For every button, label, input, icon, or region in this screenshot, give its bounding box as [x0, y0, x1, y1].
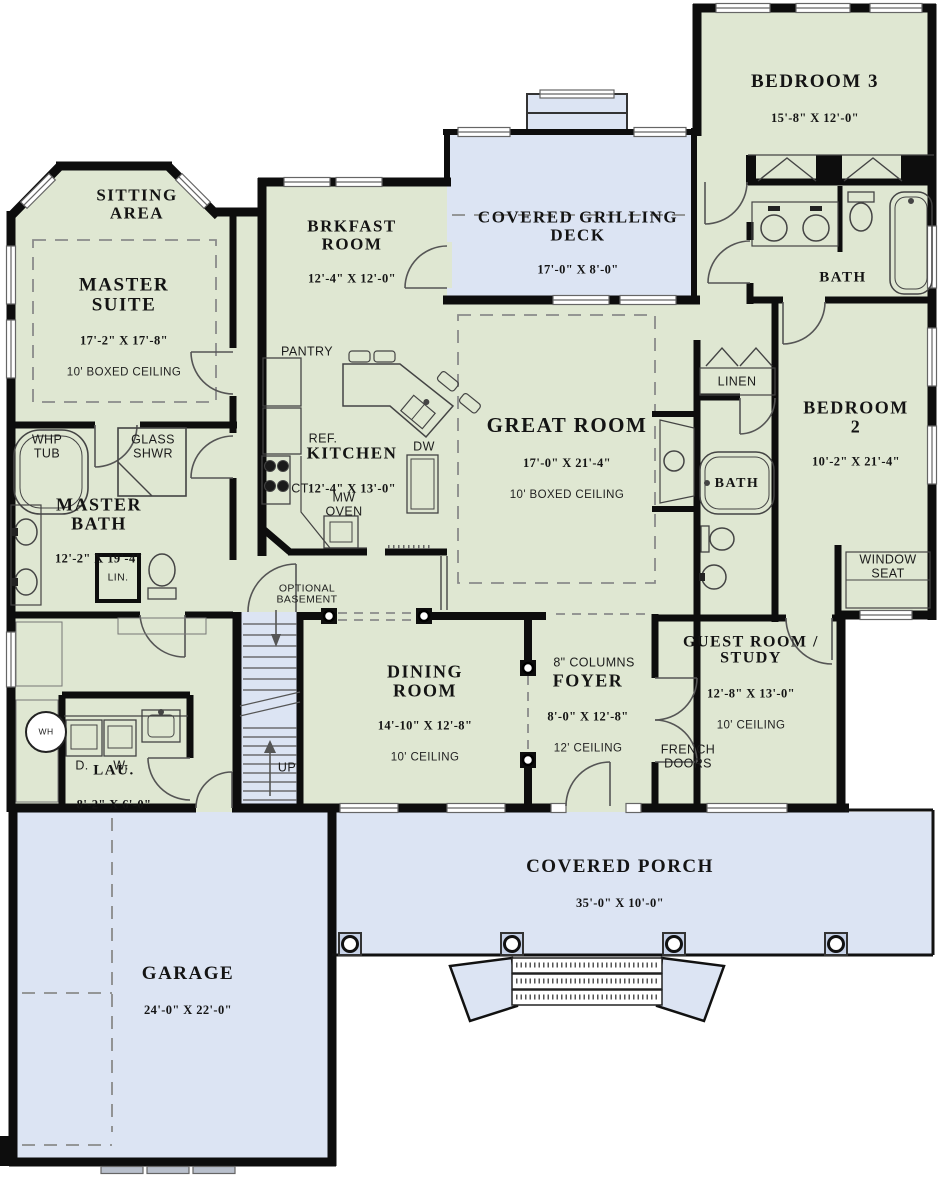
garage-label: GARAGE 24'-0" X 22'-0" — [142, 946, 234, 1036]
room-note: 10' BOXED CEILING — [67, 367, 181, 379]
whirlpool-tub-label: WHP TUB — [32, 434, 62, 461]
room-name: MASTER SUITE — [67, 275, 181, 314]
room-dims: 12'-2" X 19'-4" — [55, 552, 143, 567]
master-bath-label: MASTER BATH 12'-2" X 19'-4" — [55, 477, 143, 584]
room-name: BRKFAST ROOM — [307, 218, 397, 253]
foyer-label: FOYER 8'-0" X 12'-8" 12' CEILING — [547, 654, 628, 773]
room-note: 10' CEILING — [378, 752, 473, 764]
dishwasher-label: DW — [413, 440, 435, 454]
covered-porch-label: COVERED PORCH 35'-0" X 10'-0" — [526, 839, 714, 929]
guest-room-label: GUEST ROOM / STUDY 12'-8" X 13'-0" 10' C… — [683, 617, 819, 750]
room-dims: 15'-8" X 12'-0" — [751, 111, 879, 126]
floor-plan: SITTING AREA MASTER SUITE 17'-2" X 17'-8… — [0, 0, 950, 1185]
dryer-label: D. — [75, 759, 88, 773]
room-name: GARAGE — [142, 964, 234, 984]
room-name: GUEST ROOM / STUDY — [683, 635, 819, 668]
room-dims: 35'-0" X 10'-0" — [526, 896, 714, 911]
up-label: UP — [278, 761, 296, 775]
room-note: 10' BOXED CEILING — [487, 489, 648, 501]
columns-label: 8" COLUMNS — [553, 656, 634, 670]
room-dims: 12'-8" X 13'-0" — [683, 686, 819, 701]
glass-shower-label: GLASS SHWR — [131, 434, 175, 461]
window-seat-label: WINDOW SEAT — [859, 554, 916, 581]
room-dims: 24'-0" X 22'-0" — [142, 1003, 234, 1018]
room-name: COVERED PORCH — [526, 857, 714, 877]
french-doors-label: FRENCH DOORS — [661, 744, 715, 771]
linen-label: LINEN — [718, 375, 757, 389]
room-dims: 12'-4" X 12'-0" — [307, 272, 397, 287]
room-dims: 8'-2" X 6'-0" — [77, 798, 152, 813]
front-steps — [450, 958, 724, 1021]
room-dims: 8'-0" X 12'-8" — [547, 709, 628, 724]
dining-room-label: DINING ROOM 14'-10" X 12'-8" 10' CEILING — [378, 644, 473, 781]
linen-small-label: LIN. — [108, 572, 129, 583]
room-name: FOYER — [547, 672, 628, 691]
room-note: 10' CEILING — [683, 719, 819, 731]
bath3-label: BATH — [819, 252, 866, 303]
room-name: BATH — [715, 477, 760, 491]
room-name: BEDROOM 2 — [803, 398, 909, 435]
washer-label: W. — [113, 759, 128, 773]
room-dims: 17'-0" X 21'-4" — [487, 456, 648, 471]
room-name: DINING ROOM — [378, 662, 473, 699]
brkfast-room-label: BRKFAST ROOM 12'-4" X 12'-0" — [307, 200, 397, 305]
refrigerator-label: REF. — [309, 432, 338, 446]
room-dims: 10'-2" X 21'-4" — [803, 455, 909, 470]
room-name: BEDROOM 3 — [751, 72, 879, 92]
master-suite-label: MASTER SUITE 17'-2" X 17'-8" 10' BOXED C… — [67, 257, 181, 396]
room-name: SITTING AREA — [96, 187, 177, 222]
room-dims: 17'-0" X 8'-0" — [478, 263, 678, 278]
water-heater-label: WH — [39, 727, 54, 736]
room-name: BATH — [819, 270, 866, 285]
bedroom3-label: BEDROOM 3 15'-8" X 12'-0" — [751, 54, 879, 144]
bedroom2-label: BEDROOM 2 10'-2" X 21'-4" — [803, 380, 909, 487]
sitting-area-label: SITTING AREA — [96, 169, 177, 240]
room-note: 12' CEILING — [547, 742, 628, 754]
optional-basement-label: OPTIONAL BASEMENT — [277, 584, 338, 607]
cooktop-label: CT — [291, 482, 308, 496]
room-name: GREAT ROOM — [487, 415, 648, 437]
bath2-label: BATH — [715, 459, 760, 509]
pantry-label: PANTRY — [281, 345, 333, 359]
grilling-deck-label: COVERED GRILLING DECK 17'-0" X 8'-0" — [478, 191, 678, 296]
room-name: COVERED GRILLING DECK — [478, 209, 678, 244]
room-dims: 14'-10" X 12'-8" — [378, 719, 473, 734]
great-room-label: GREAT ROOM 17'-0" X 21'-4" 10' BOXED CEI… — [487, 397, 648, 519]
room-dims: 17'-2" X 17'-8" — [67, 334, 181, 349]
room-name: KITCHEN — [307, 444, 398, 462]
room-name: MASTER BATH — [55, 495, 143, 532]
microwave-label: MW OVEN — [325, 492, 362, 519]
